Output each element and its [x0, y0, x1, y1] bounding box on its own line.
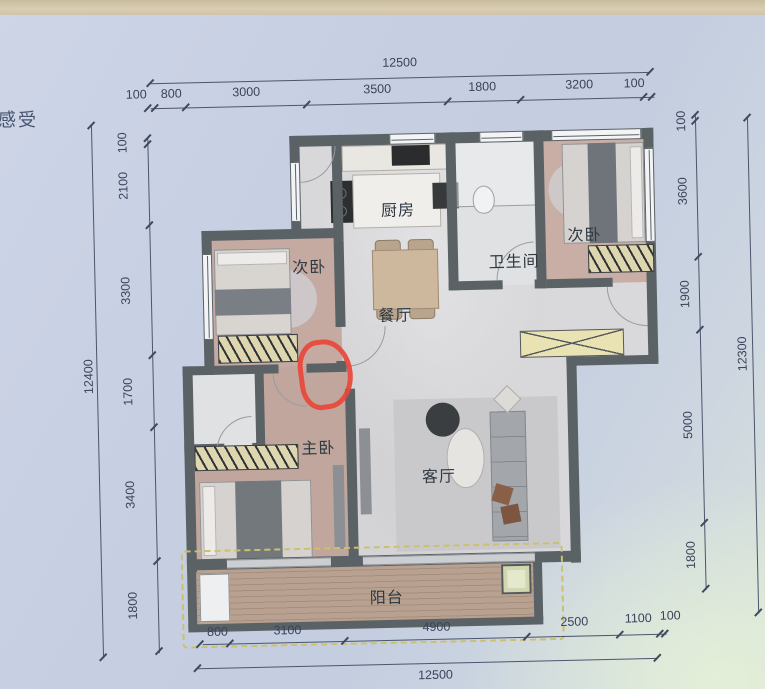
- dim-label: 100: [624, 76, 645, 90]
- dim-label: 1900: [678, 280, 693, 308]
- wall-segment: [566, 355, 658, 366]
- dim-tick: [99, 653, 107, 661]
- dim-line: [147, 138, 160, 653]
- dim-tick: [653, 653, 661, 661]
- dim-label: 1700: [121, 378, 136, 406]
- room-label-kitchen: 厨房: [381, 196, 416, 221]
- floorplan-photo: 感受: [0, 0, 765, 689]
- dim-label: 100: [660, 608, 681, 622]
- dim-tick: [155, 647, 163, 655]
- dim-total-bottom: 12500: [418, 667, 453, 682]
- toilet-icon: [472, 185, 495, 213]
- dim-label: 800: [207, 625, 228, 639]
- wardrobe-hatch: [194, 444, 299, 471]
- dim-total-top: 12500: [382, 55, 417, 70]
- dim-label: 1800: [126, 592, 141, 620]
- bed-pillow: [217, 251, 287, 266]
- dim-label: 4900: [422, 620, 450, 635]
- window: [479, 131, 523, 143]
- window: [202, 254, 214, 340]
- dim-label: 100: [115, 132, 129, 153]
- floorplan: 厨房 次卧 卫生间 次卧 餐厅 主卧 客厅 阳台 12500 100 800 3…: [0, 0, 765, 689]
- room-label-dining: 餐厅: [378, 301, 413, 326]
- dim-label: 1800: [468, 79, 496, 94]
- wall-segment: [449, 280, 503, 290]
- dim-label: 3500: [363, 82, 391, 97]
- shower-enclosure: [453, 139, 540, 207]
- dim-label: 2100: [116, 172, 131, 200]
- window: [644, 148, 656, 242]
- storage-cabinet: [520, 329, 625, 358]
- dim-label: 3600: [675, 177, 690, 205]
- sink-icon: [391, 145, 429, 166]
- window: [389, 133, 435, 145]
- dim-label: 3300: [118, 277, 133, 305]
- wardrobe-hatch: [588, 244, 655, 273]
- room-label-living: 客厅: [422, 462, 457, 487]
- dim-label: 800: [161, 86, 182, 100]
- dim-tick: [702, 584, 710, 592]
- room-label-bathroom: 卫生间: [488, 247, 540, 272]
- dim-line: [151, 97, 655, 110]
- dim-label: 3200: [565, 77, 593, 92]
- room-label-bedroom1: 次卧: [292, 253, 327, 278]
- dim-tick: [646, 67, 654, 75]
- window: [551, 128, 641, 141]
- wall-segment: [334, 241, 346, 327]
- tv-cabinet: [333, 465, 346, 549]
- bed-pillow: [630, 146, 644, 238]
- wall-segment: [214, 364, 278, 374]
- dim-tick: [754, 608, 762, 616]
- dim-total-right: 12300: [735, 336, 750, 371]
- dim-label: 100: [674, 111, 688, 132]
- dim-label: 5000: [681, 411, 696, 439]
- sofa-pillow: [500, 504, 521, 525]
- wall-segment: [547, 278, 613, 288]
- dim-label: 1100: [625, 611, 652, 626]
- dim-label: 2500: [560, 614, 588, 629]
- balcony-dashed-outline: [181, 542, 565, 649]
- dim-label: 3100: [273, 623, 301, 638]
- dim-total-left: 12400: [81, 359, 96, 394]
- dim-label: 1800: [684, 541, 699, 569]
- room-label-master: 主卧: [301, 434, 336, 459]
- room-label-bedroom2: 次卧: [567, 221, 602, 246]
- wall-segment: [535, 279, 547, 288]
- bed-blanket: [215, 288, 292, 316]
- dim-label: 3400: [123, 481, 138, 509]
- tv-bench: [359, 428, 372, 514]
- wardrobe-hatch: [218, 334, 299, 364]
- dim-label: 100: [126, 87, 147, 101]
- bed-pillow: [202, 486, 217, 556]
- wall-segment: [255, 369, 266, 451]
- dim-label: 3000: [232, 85, 260, 100]
